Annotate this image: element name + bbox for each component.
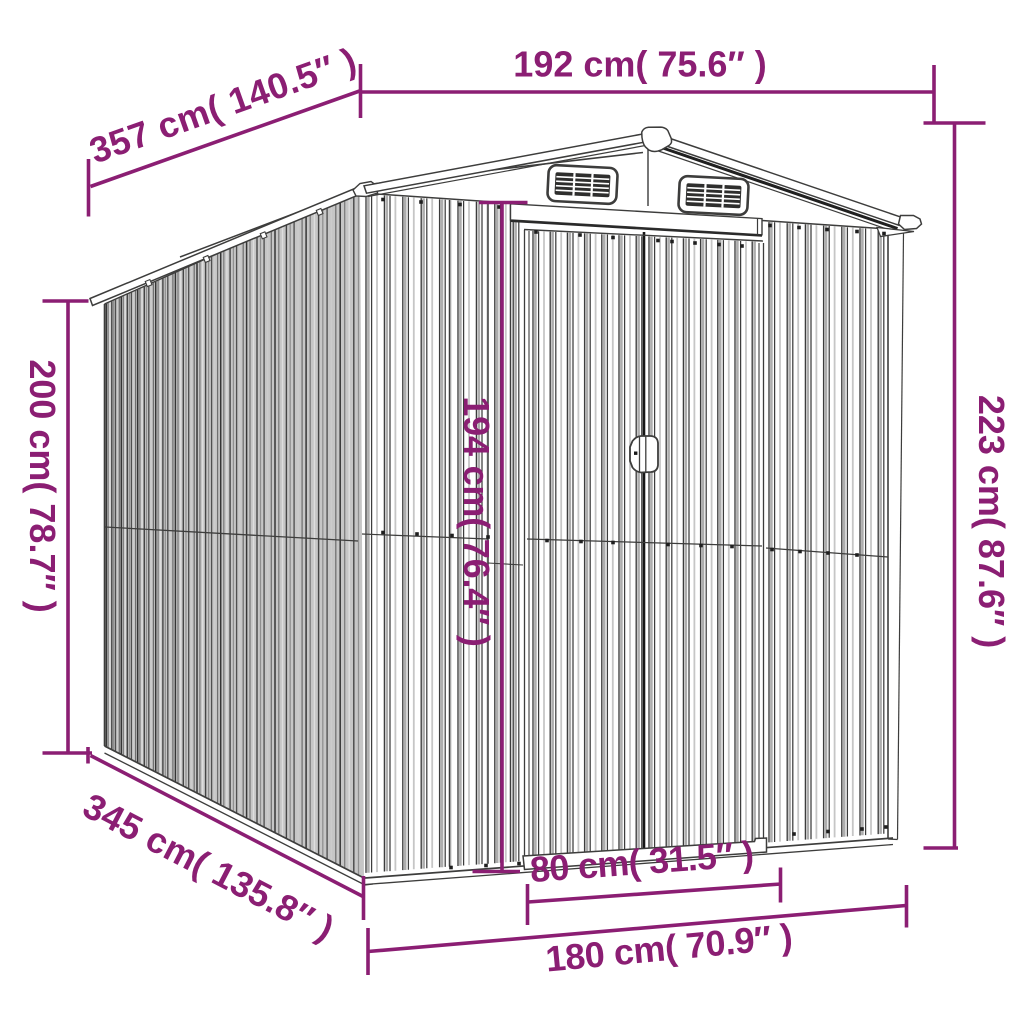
svg-text:194 cm( 76.4″ ): 194 cm( 76.4″ )	[456, 396, 497, 646]
svg-text:223 cm( 87.6″ ): 223 cm( 87.6″ )	[971, 395, 1012, 648]
svg-text:200 cm( 78.7″ ): 200 cm( 78.7″ )	[22, 359, 63, 612]
svg-text:192 cm( 75.6″ ): 192 cm( 75.6″ )	[513, 44, 766, 85]
